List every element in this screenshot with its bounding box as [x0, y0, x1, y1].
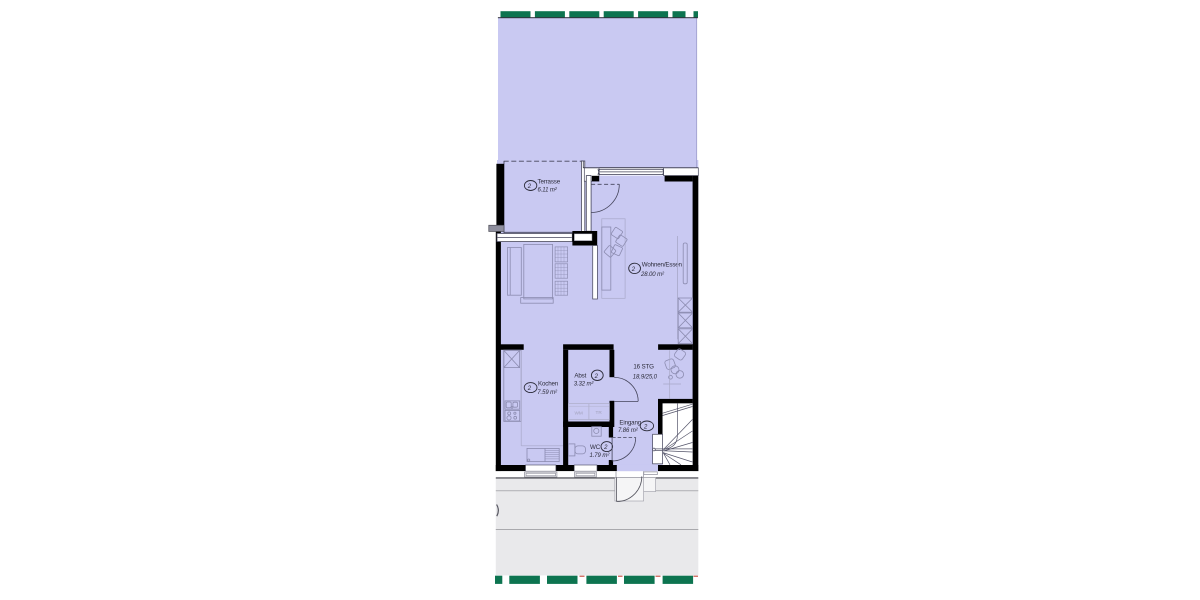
svg-text:TR: TR — [596, 410, 603, 415]
svg-text:WC: WC — [590, 444, 601, 451]
svg-text:2: 2 — [603, 445, 608, 451]
svg-text:Wohnen/Essen: Wohnen/Essen — [642, 262, 683, 269]
svg-text:7.59 m²: 7.59 m² — [537, 390, 558, 396]
svg-text:6.11 m²: 6.11 m² — [538, 188, 558, 194]
svg-text:16 STG: 16 STG — [633, 364, 654, 371]
svg-text:28.00 m²: 28.00 m² — [640, 272, 665, 278]
svg-text:2: 2 — [527, 386, 532, 392]
svg-text:18,9/25,0: 18,9/25,0 — [633, 375, 658, 381]
svg-text:Eingang: Eingang — [619, 420, 641, 427]
svg-text:2: 2 — [631, 267, 636, 273]
svg-text:Kochen: Kochen — [538, 381, 559, 388]
svg-text:2: 2 — [594, 374, 599, 380]
svg-text:2: 2 — [527, 184, 532, 190]
svg-text:7.86 m²: 7.86 m² — [618, 428, 639, 434]
svg-text:Abst: Abst — [574, 372, 586, 379]
svg-text:Terrasse: Terrasse — [538, 179, 561, 186]
svg-text:WM: WM — [575, 411, 583, 416]
svg-text:1.79 m²: 1.79 m² — [590, 453, 611, 459]
svg-text:3.32 m²: 3.32 m² — [574, 381, 595, 387]
